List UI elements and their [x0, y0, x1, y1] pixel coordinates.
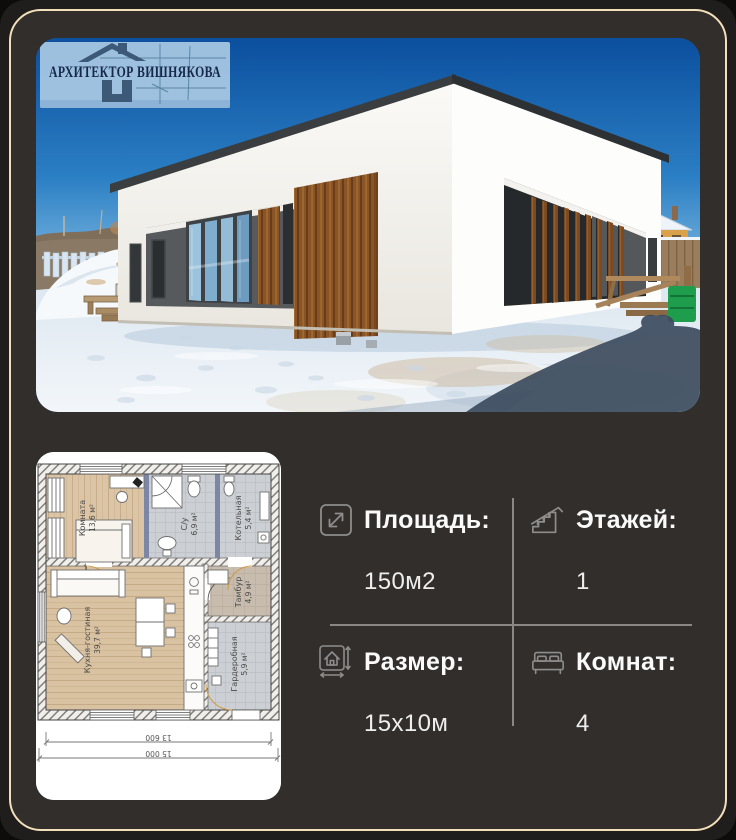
spec-rooms: Комнат: 4: [530, 644, 720, 738]
room-area: 5,4 м²: [244, 507, 253, 530]
spec-size: Размер: 15x10м: [318, 644, 508, 738]
watermark-logo: АРХИТЕКТОР ВИШНЯКОВА: [40, 42, 230, 108]
bed-icon: [530, 644, 566, 680]
specs-panel: Площадь: 150м2 Этажей: 1: [318, 498, 714, 740]
room-label: С/у: [180, 517, 189, 530]
house-dimensions-icon: [318, 644, 354, 680]
spec-size-value: 15x10м: [364, 710, 508, 738]
room-area: 5,9 м²: [240, 653, 249, 676]
corner-window: [130, 244, 141, 302]
room-label: Кухня-гостиная: [83, 607, 92, 674]
spec-area-label: Площадь:: [364, 506, 490, 535]
area-expand-icon: [318, 502, 354, 538]
spec-size-label: Размер:: [364, 648, 464, 677]
spec-area: Площадь: 150м2: [318, 502, 508, 596]
room-label: Комната: [78, 500, 87, 536]
room-area: 4,9 м²: [244, 581, 253, 604]
room-area: 39,7 м²: [93, 626, 102, 654]
project-card: АРХИТЕКТОР ВИШНЯКОВА: [0, 0, 736, 840]
stairs-icon: [530, 502, 566, 538]
spec-floors-value: 1: [576, 568, 720, 596]
green-equipment: [668, 286, 696, 322]
room-label: Котельная: [234, 495, 243, 540]
room-label: Тамбур: [234, 577, 243, 609]
specs-vertical-divider: [512, 498, 514, 726]
room-label: Гардеробная: [230, 636, 239, 691]
wood-cladding-section: [294, 172, 378, 339]
spec-area-value: 150м2: [364, 568, 508, 596]
house-photo: АРХИТЕКТОР ВИШНЯКОВА: [36, 38, 700, 412]
dimension-inner: 13 600: [145, 733, 171, 742]
room-area: 13,6 м²: [88, 504, 97, 532]
spec-floors-label: Этажей:: [576, 506, 677, 535]
right-facade-window: [648, 238, 657, 282]
room-area: 6,9 м²: [190, 513, 199, 536]
dimension-outer: 15 000: [145, 749, 171, 758]
floor-plan-drawing: Комната 13,6 м² С/у 6,9 м² Котельная 5,4…: [36, 452, 281, 800]
logo-text: АРХИТЕКТОР ВИШНЯКОВА: [49, 64, 221, 81]
spec-floors: Этажей: 1: [530, 502, 720, 596]
architect-logo: АРХИТЕКТОР ВИШНЯКОВА: [40, 42, 230, 108]
floor-plan-card: Комната 13,6 м² С/у 6,9 м² Котельная 5,4…: [36, 452, 281, 800]
spec-rooms-label: Комнат:: [576, 648, 676, 677]
specs-horizontal-divider: [330, 624, 692, 626]
spec-rooms-value: 4: [576, 710, 720, 738]
